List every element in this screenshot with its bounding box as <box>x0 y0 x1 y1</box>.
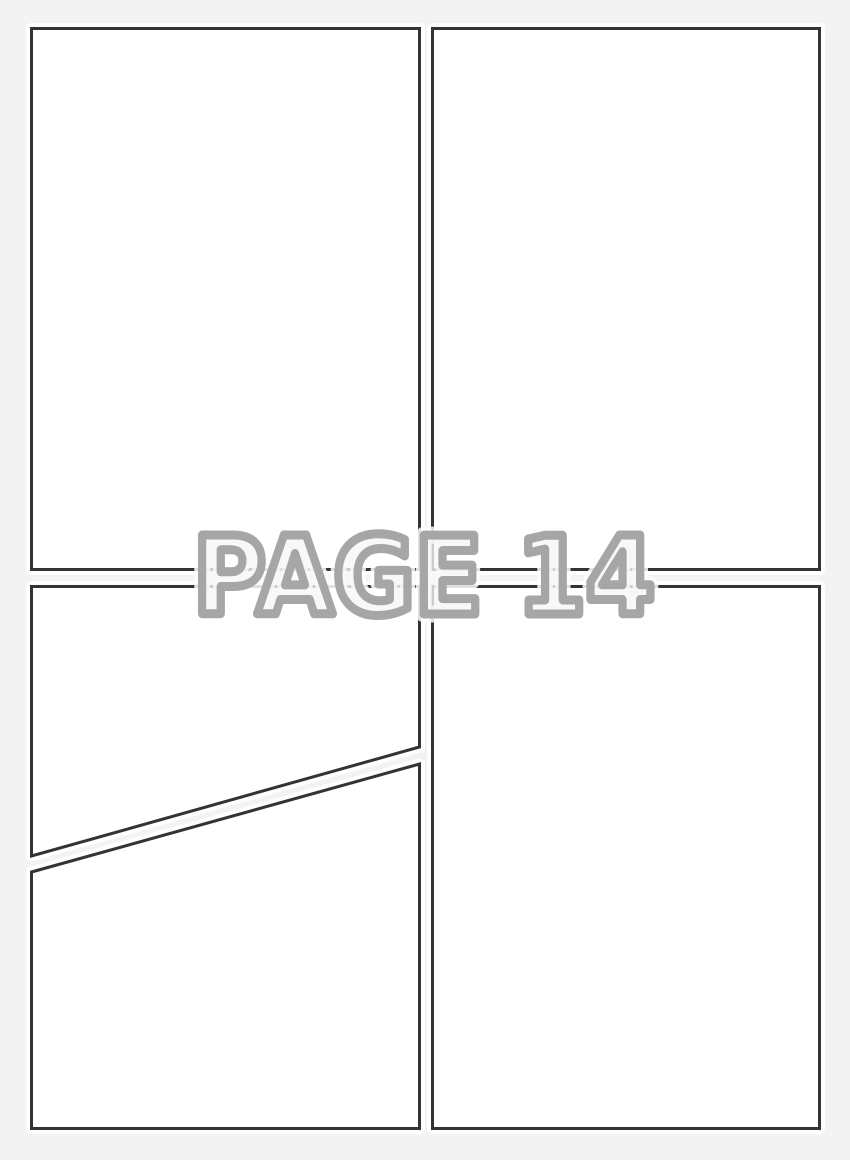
watermark: PAGE 14 PAGE 14 PAGE 14 <box>193 515 655 640</box>
panel-top-right <box>433 29 820 570</box>
panel-bottom-right <box>433 587 820 1129</box>
watermark-outline-text: PAGE 14 <box>193 515 655 640</box>
panel-top-left <box>32 29 420 570</box>
comic-page-template: PAGE 14 PAGE 14 PAGE 14 <box>0 0 850 1160</box>
